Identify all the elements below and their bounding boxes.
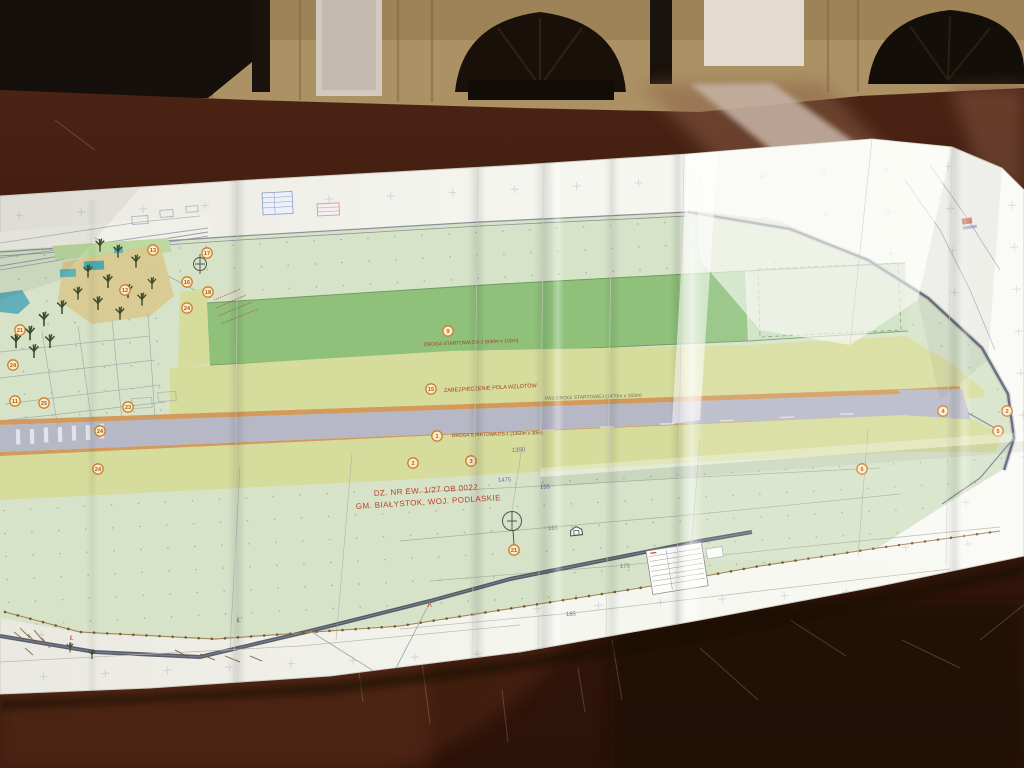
svg-text:9: 9 — [446, 329, 449, 335]
svg-text:21: 21 — [511, 548, 517, 554]
map-marker: 16 — [182, 277, 192, 287]
svg-text:2: 2 — [411, 461, 414, 467]
scene: DROGA STARTOWA DS-2 (840m x 100m) ZABEZP… — [0, 0, 1024, 768]
svg-text:21: 21 — [17, 328, 23, 334]
svg-text:11: 11 — [12, 399, 18, 405]
svg-text:24: 24 — [10, 363, 17, 369]
map-marker: 1 — [432, 431, 442, 441]
map-marker: 24 — [8, 360, 18, 370]
svg-text:25: 25 — [41, 401, 47, 407]
svg-text:13: 13 — [150, 248, 156, 254]
map-marker: 9 — [443, 326, 453, 336]
map-marker: 11 — [10, 396, 20, 406]
svg-text:15: 15 — [428, 387, 434, 393]
svg-text:24: 24 — [184, 306, 191, 312]
map-marker: 25 — [39, 398, 49, 408]
contour-label: 185 — [566, 611, 577, 618]
map-marker: 12 — [120, 285, 130, 295]
svg-text:17: 17 — [204, 251, 210, 257]
section-label-l2: Ł — [70, 635, 74, 642]
contour-label: 1350 — [512, 447, 526, 454]
map-marker: 17 — [202, 248, 212, 258]
map-marker: 15 — [426, 384, 436, 394]
section-label-k: K' — [428, 602, 435, 609]
svg-text:23: 23 — [125, 405, 131, 411]
svg-text:18: 18 — [205, 290, 211, 296]
contour-label: 175 — [620, 563, 631, 570]
map-marker: 2 — [408, 458, 418, 468]
svg-text:16: 16 — [184, 280, 190, 286]
svg-text:1: 1 — [435, 434, 438, 440]
map-marker: 23 — [123, 402, 133, 412]
contour-label: 1475 — [498, 477, 512, 484]
map-marker: 13 — [148, 245, 158, 255]
map-marker: 21 — [509, 545, 519, 555]
svg-text:12: 12 — [122, 288, 128, 294]
stamp-table-blue — [262, 191, 293, 215]
stamp-table-pink — [317, 203, 340, 216]
bright-doorway — [704, 0, 804, 66]
map-marker: 24 — [182, 303, 192, 313]
photo-of-site-plan: DROGA STARTOWA DS-2 (840m x 100m) ZABEZP… — [0, 0, 1024, 768]
map-marker: 21 — [15, 325, 25, 335]
map-marker: 18 — [203, 287, 213, 297]
